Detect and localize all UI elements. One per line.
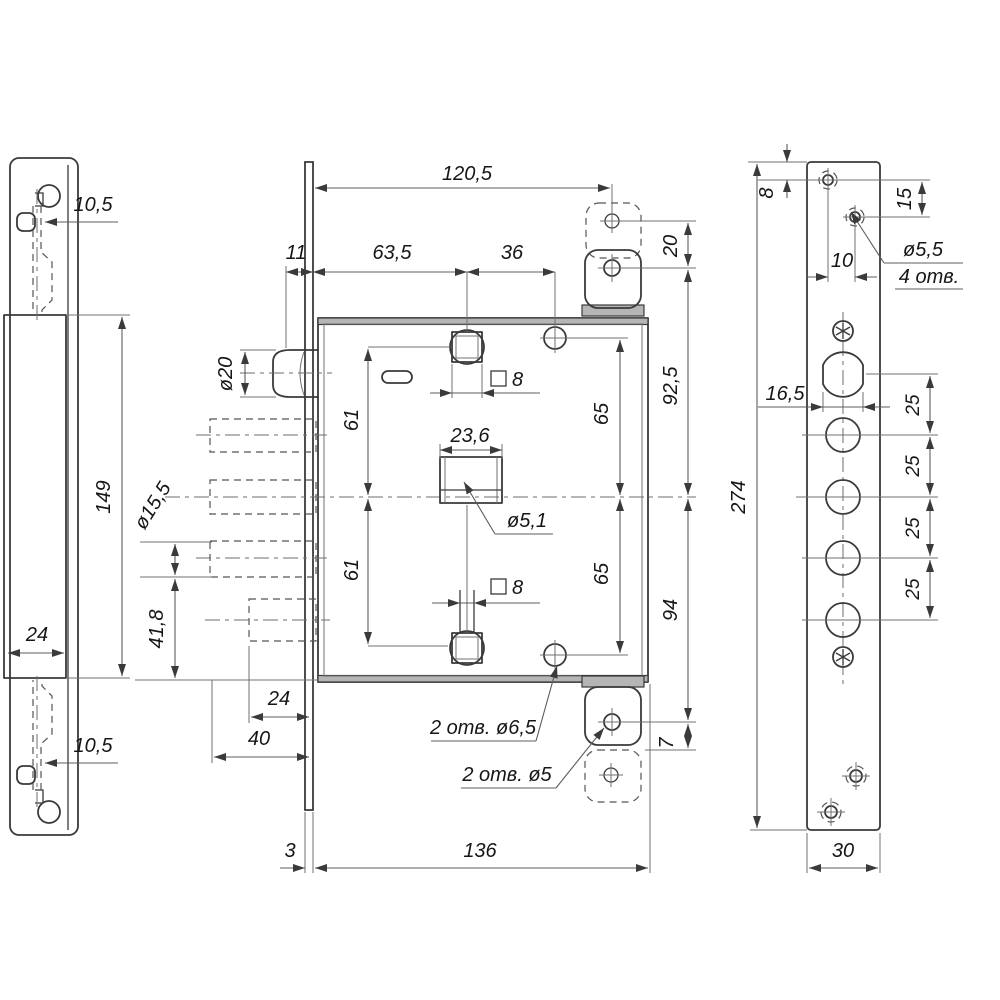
dim-body-backset: 63,5 — [313, 242, 467, 272]
dim-label-fp-pitch-4: 25 — [903, 578, 924, 601]
dim-label-square-top: 8 — [512, 369, 523, 391]
keeper-bracket-bottom-hidden — [585, 750, 641, 802]
dim-strike-box-width: 24 — [8, 624, 64, 653]
label-two-holes-5: 2 отв. ø5 — [461, 764, 552, 786]
dim-label-body-width: 136 — [463, 840, 497, 862]
dim-label-body-lower-span: 94 — [660, 599, 682, 621]
dim-latch-dia: ø20 — [215, 350, 276, 397]
dim-label-body-backset: 63,5 — [373, 242, 413, 264]
dim-label-fp-cyl-width: 16,5 — [766, 383, 806, 405]
dim-bolt-edge-offset: 41,8 — [146, 579, 175, 678]
strike-screw-hole-bottom — [38, 801, 60, 823]
dim-label-spindle-upper: 61 — [341, 409, 363, 431]
dim-label-latch-dia: ø20 — [215, 357, 237, 391]
dim-label-fp-pitch-1: 25 — [903, 394, 924, 417]
label-fp-screw-count: 4 отв. — [899, 266, 959, 288]
strike-screw-hole-top — [38, 185, 60, 207]
dim-body-overall-width: 120,5 — [315, 163, 610, 188]
strike-plate-view: 10,5 149 24 10,5 — [4, 158, 130, 835]
dim-body-face-gap: 11 — [286, 242, 313, 348]
strike-lug-top — [33, 189, 52, 322]
dim-label-strike-box-height: 149 — [93, 480, 115, 513]
dim-label-square-bottom: 8 — [512, 577, 523, 599]
label-fp-screw-dia: ø5,5 — [903, 239, 944, 261]
dim-label-fp-width: 30 — [832, 840, 854, 862]
dim-label-bolt-edge-offset: 41,8 — [146, 610, 168, 649]
torx-screw-top — [833, 321, 853, 341]
dim-label-body-upper-span: 92,5 — [660, 366, 682, 406]
dim-label-hole-upper: 65 — [591, 402, 613, 425]
dim-aux-bolt-width: 24 — [249, 646, 309, 723]
dim-label-fp-height: 274 — [728, 480, 750, 514]
dim-fp-top-offset: 8 — [748, 144, 836, 199]
strike-side-hole-top — [17, 213, 35, 231]
dim-label-aux-bolt-width: 24 — [267, 688, 290, 710]
dim-label-keeper-hole-gap: 20 — [660, 235, 682, 258]
strike-lug-bottom — [33, 676, 52, 807]
cross-screw-2 — [817, 798, 845, 826]
dim-label-spindle-lower: 61 — [341, 559, 363, 581]
label-cyl-pin-dia: ø5,1 — [507, 510, 547, 532]
dim-label-fp-hole-v: 15 — [894, 187, 916, 210]
deadbolts-hidden — [196, 419, 330, 641]
dim-fp-height: 274 — [728, 164, 807, 830]
dim-label-spindle-to-hole: 36 — [501, 242, 524, 264]
dim-label-strike-offset-bottom: 10,5 — [74, 735, 114, 757]
dim-label-bolt-throw: 40 — [248, 728, 270, 750]
dim-bolt-dia: ø15,5 — [130, 478, 212, 577]
dim-body-upper-span: 92,5 — [660, 270, 688, 495]
dim-label-fp-hole-h: 10 — [831, 250, 853, 272]
dim-label-cyl-slot-width: 23,6 — [450, 425, 491, 447]
dim-strike-offset-bottom: 10,5 — [45, 735, 118, 763]
cross-screw-1 — [842, 762, 870, 790]
lock-body-view: 120,5 11 63,5 36 20 92,5 94 — [130, 162, 696, 873]
dim-keeper-hole-gap: 20 — [622, 221, 696, 268]
dim-fp-width: 30 — [807, 833, 880, 873]
dim-label-body-overall-width: 120,5 — [442, 163, 493, 185]
dim-strike-offset-top: 10,5 — [45, 194, 118, 222]
dim-face-thickness: 3 — [280, 812, 313, 873]
keeper-bracket-bottom — [582, 676, 644, 802]
dim-label-strike-box-width: 24 — [25, 624, 48, 646]
dim-label-fp-pitch-3: 25 — [903, 517, 924, 540]
dim-label-fp-pitch-2: 25 — [903, 455, 924, 478]
drawing-canvas: 10,5 149 24 10,5 — [0, 0, 1000, 1000]
dim-label-strike-offset-top: 10,5 — [74, 194, 114, 216]
dim-label-fp-top-offset: 8 — [756, 187, 778, 198]
dim-label-body-face-gap: 11 — [286, 242, 307, 264]
lock-assembly-drawing: 10,5 149 24 10,5 — [0, 0, 1000, 1000]
torx-screw-bottom — [833, 647, 853, 667]
dim-label-bolt-dia: ø15,5 — [130, 478, 176, 534]
dim-keeper-lower-gap: 7 — [645, 724, 696, 750]
dim-label-face-thickness: 3 — [284, 840, 295, 862]
strike-side-hole-bottom — [17, 766, 35, 784]
dim-bolt-throw: 40 — [212, 680, 309, 763]
faceplate-view: 8 15 10 ø5,5 4 отв. 16,5 — [728, 144, 963, 873]
dim-spindle-to-hole: 36 — [467, 242, 555, 272]
keeper-bracket-top — [582, 203, 644, 316]
dim-label-hole-lower: 65 — [591, 562, 613, 585]
dim-fp-pitch: 25 25 25 25 — [866, 374, 938, 618]
dim-label-keeper-lower-gap: 7 — [656, 737, 678, 749]
label-two-holes-65: 2 отв. ø6,5 — [429, 717, 537, 739]
dim-fp-hole-v: 15 — [836, 180, 930, 217]
